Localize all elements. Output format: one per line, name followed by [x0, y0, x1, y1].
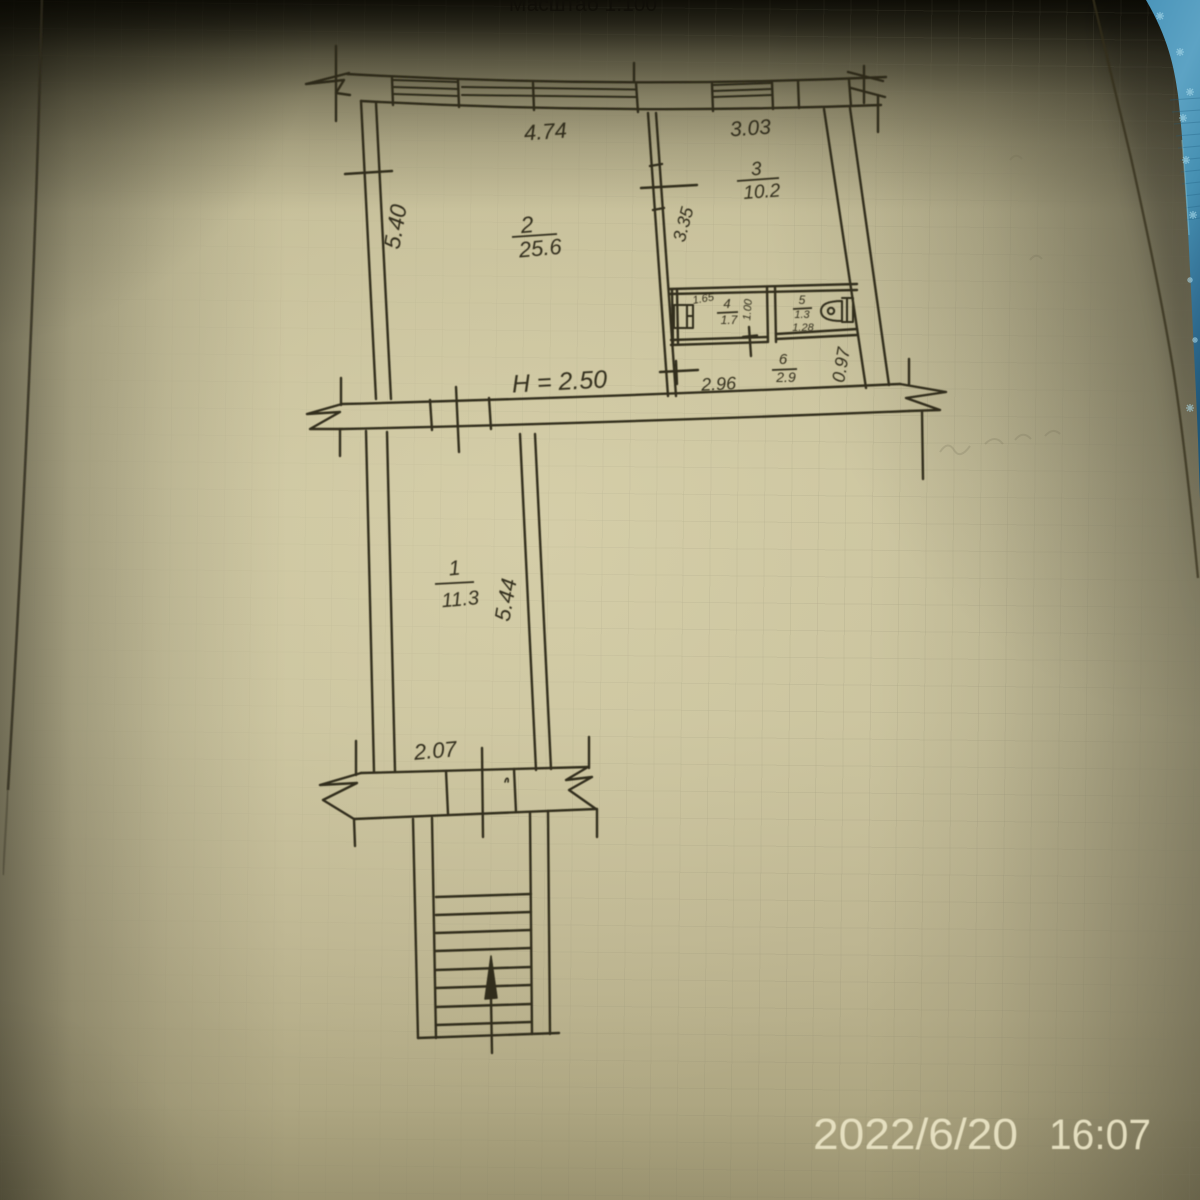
svg-text:5.40: 5.40 [378, 202, 411, 251]
svg-text:Масштаб 1:100: Масштаб 1:100 [509, 0, 657, 16]
svg-text:1: 1 [448, 557, 462, 581]
svg-text:0.97: 0.97 [828, 345, 854, 384]
svg-text:2.96: 2.96 [700, 373, 738, 395]
svg-text:3.35: 3.35 [669, 204, 698, 244]
svg-text:25.6: 25.6 [517, 234, 564, 263]
svg-text:2.07: 2.07 [412, 736, 459, 765]
svg-text:6: 6 [779, 351, 788, 368]
svg-text:11.3: 11.3 [441, 587, 480, 612]
svg-text:2: 2 [519, 211, 535, 238]
svg-text:2.9: 2.9 [775, 369, 796, 385]
svg-text:3: 3 [750, 159, 762, 181]
svg-text:16:07: 16:07 [1049, 1111, 1151, 1159]
svg-text:1.65: 1.65 [692, 291, 716, 307]
svg-text:4: 4 [723, 296, 730, 311]
svg-text:4.74: 4.74 [523, 118, 567, 146]
svg-text:10.2: 10.2 [743, 180, 782, 204]
svg-text:1.28: 1.28 [792, 322, 814, 334]
svg-text:5.44: 5.44 [490, 576, 522, 623]
svg-text:5: 5 [799, 293, 806, 307]
svg-text:1.7: 1.7 [721, 313, 739, 327]
svg-text:H = 2.50: H = 2.50 [511, 365, 608, 398]
svg-text:1.00: 1.00 [741, 298, 755, 321]
svg-text:1.3: 1.3 [794, 309, 810, 321]
svg-text:2022/6/20: 2022/6/20 [813, 1110, 1018, 1159]
svg-text:3.03: 3.03 [729, 116, 772, 142]
